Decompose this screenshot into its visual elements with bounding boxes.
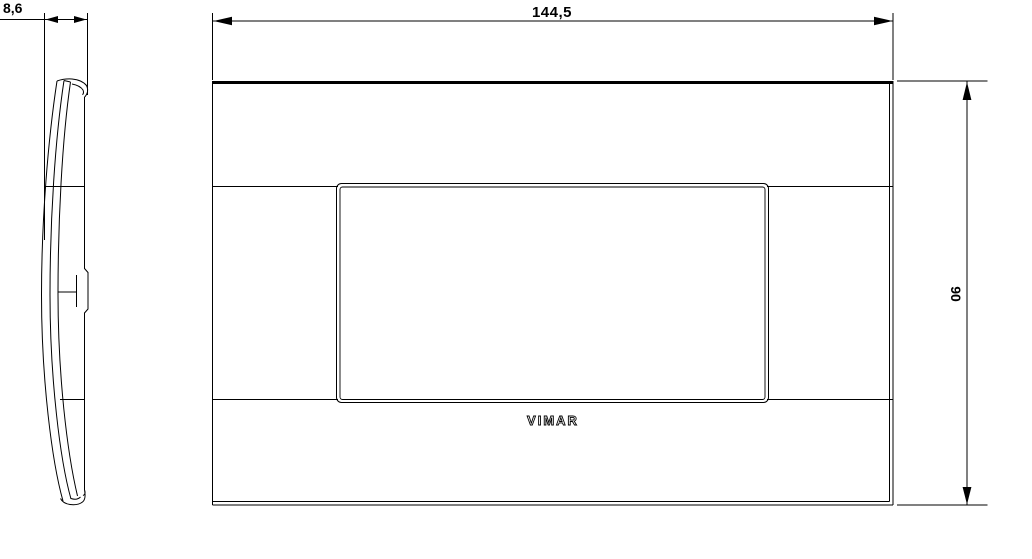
module-window-inner [340,187,765,400]
arrowhead-left-icon [46,16,59,23]
plate-bottom-edge [213,502,894,506]
height-dimension: 90 [897,81,988,505]
drawing-canvas: 8,6 [0,0,1032,559]
depth-dimension: 8,6 [0,0,88,240]
plate-right-edge [890,81,894,505]
profile-face-curves [42,81,78,502]
profile-bottom-hook [61,490,86,505]
depth-dimension-label: 8,6 [3,0,23,16]
height-dimension-lines [897,81,988,505]
front-view: VIMAR [212,81,893,505]
arrowhead-up-icon [963,82,972,100]
plate-crease-lines [213,187,894,400]
arrowhead-left-icon [214,17,233,25]
module-window [337,184,769,403]
width-dimension-label: 144,5 [532,4,572,21]
arrowhead-right-icon [74,16,87,23]
module-window-outer [337,184,769,403]
vimar-logo: VIMAR [527,413,579,428]
technical-drawing-page: 8,6 [0,0,1032,559]
profile-feature-lines [45,187,85,400]
arrowhead-right-icon [874,17,893,25]
width-dimension-lines [213,13,894,80]
side-view: 8,6 [0,0,88,505]
height-dimension-label: 90 [948,286,964,302]
profile-back-edge [77,97,89,490]
side-profile [42,79,89,505]
depth-dimension-lines [0,13,88,240]
arrowhead-down-icon [963,487,972,505]
plate-outline [212,81,893,505]
plate-top-edge [212,81,893,84]
width-dimension: 144,5 [213,4,894,80]
